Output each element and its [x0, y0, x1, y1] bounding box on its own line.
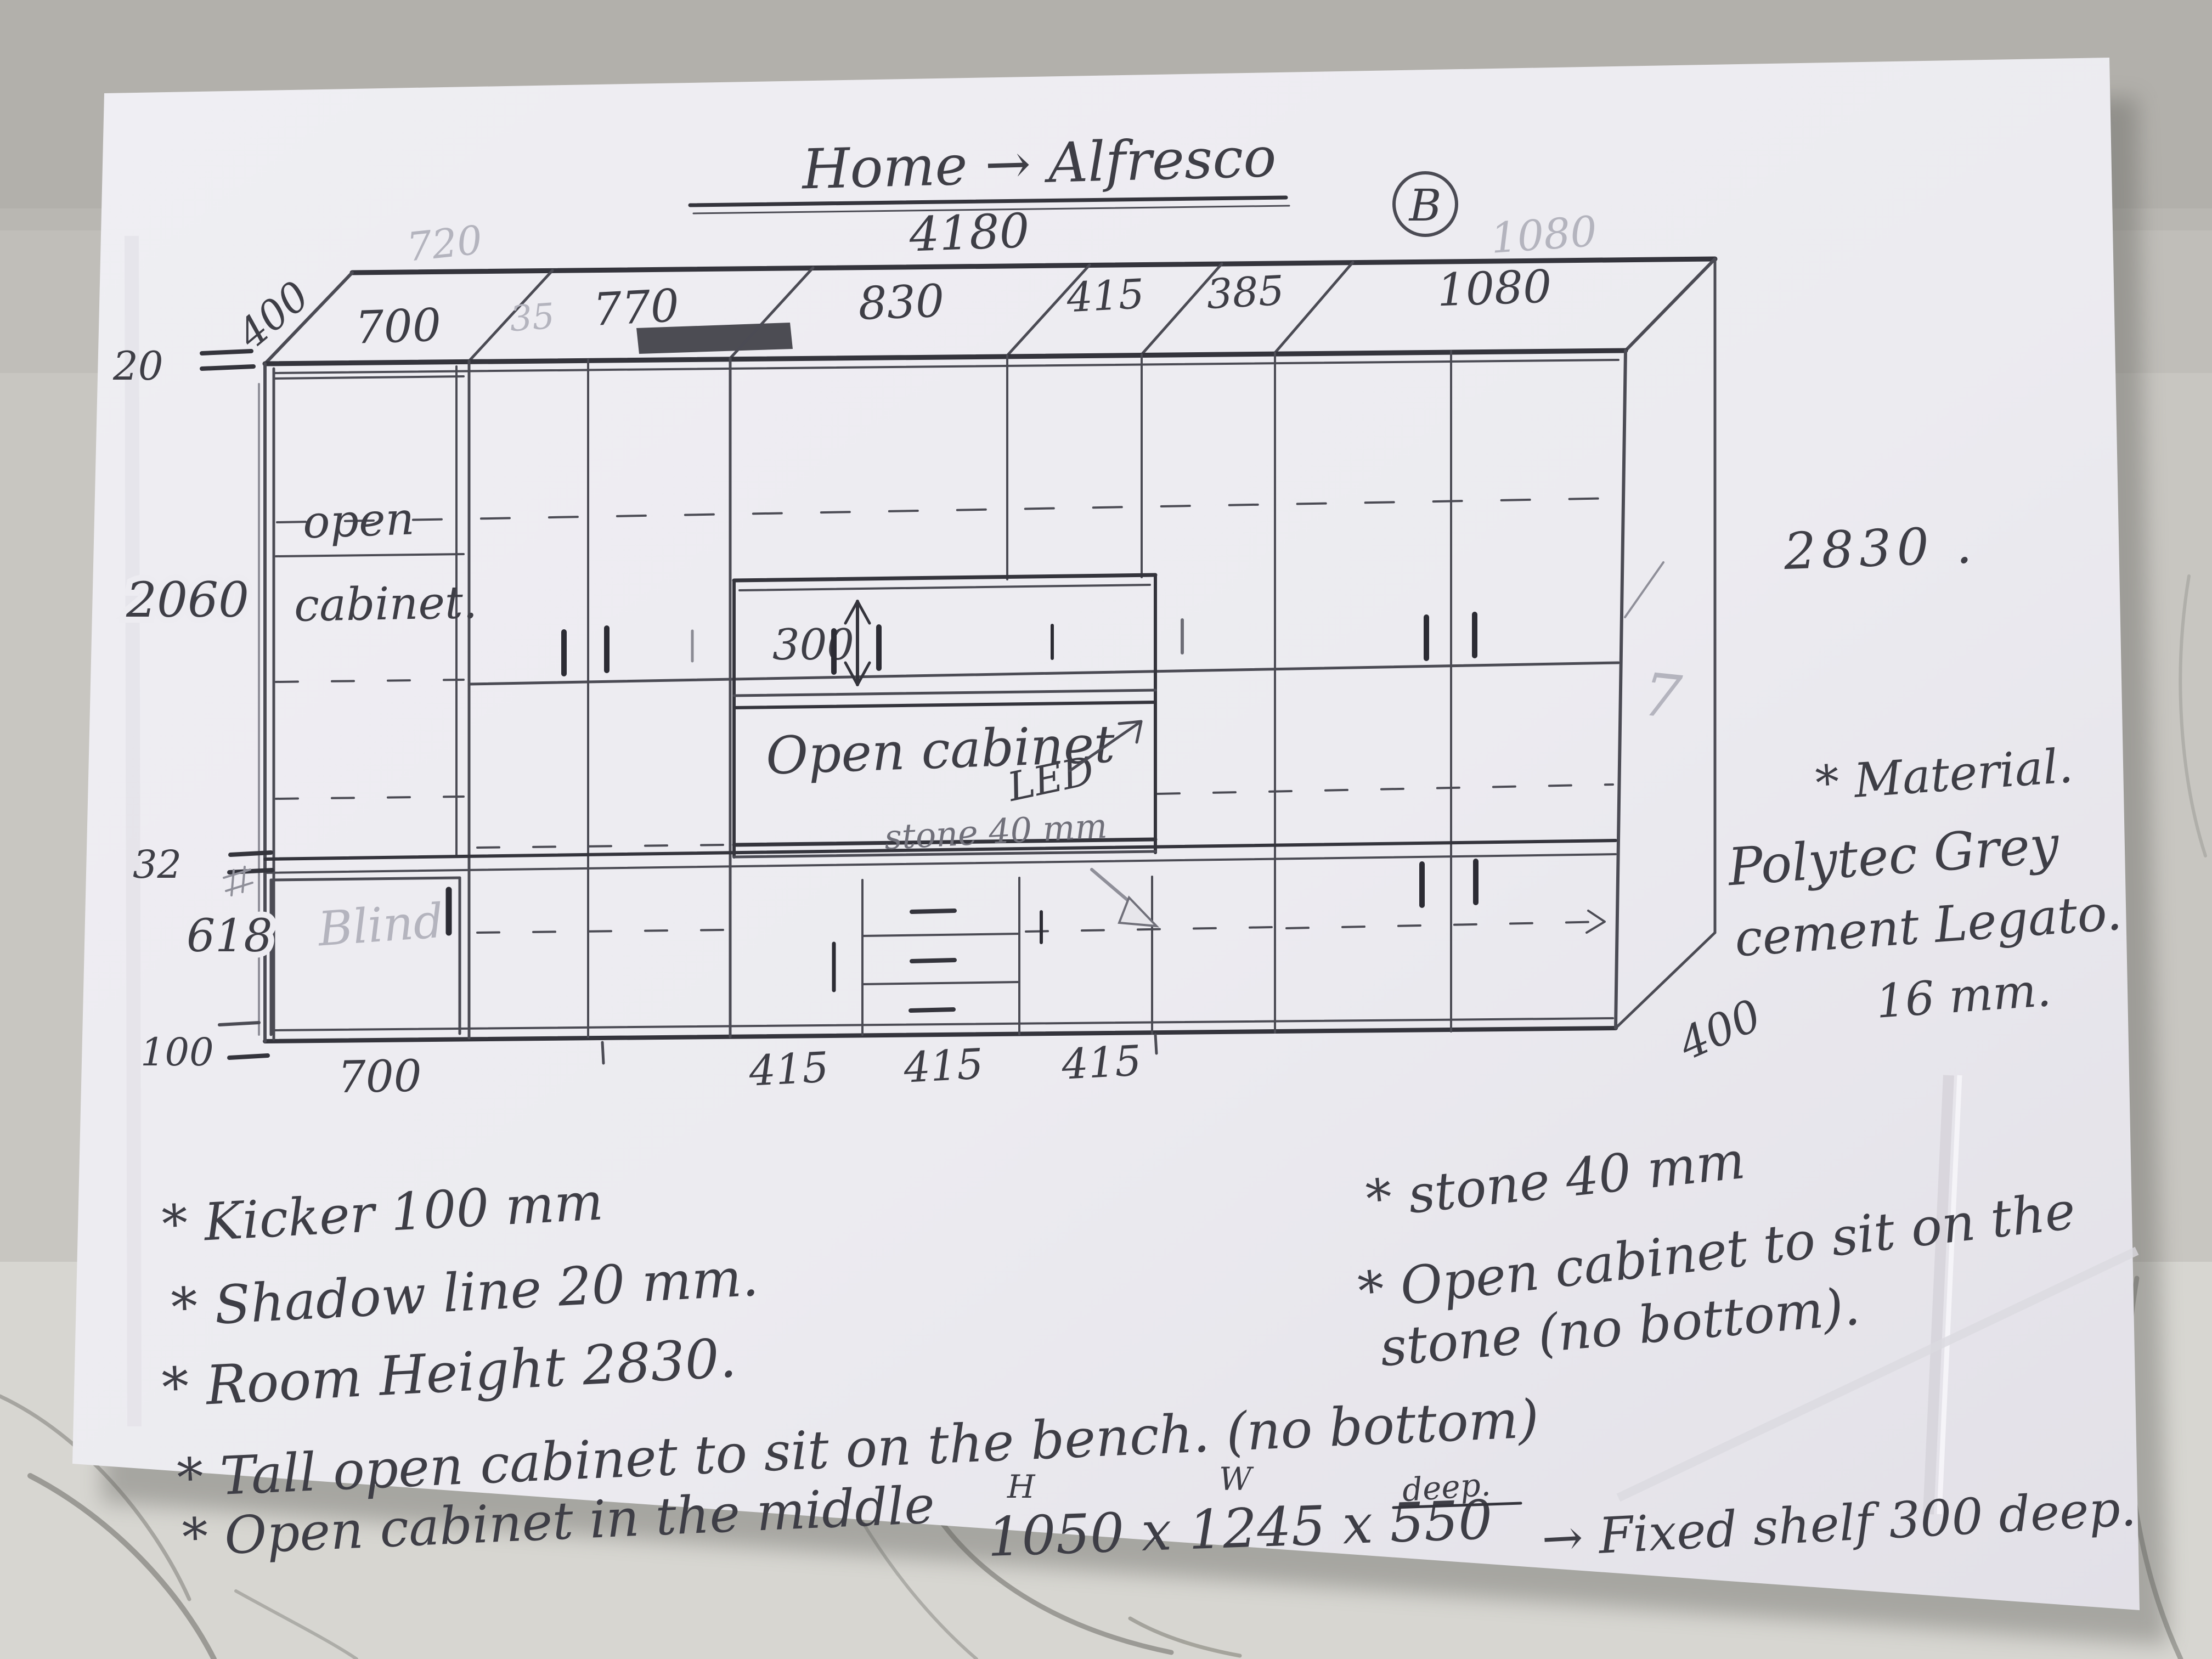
ghost-mark-7: 7 [1640, 661, 1685, 733]
sheet-title: Home → Alfresco [800, 125, 1277, 202]
revision-badge: B [1408, 180, 1442, 231]
dim-top-770: 770 [592, 280, 680, 336]
dim-base-618: 618 [187, 910, 273, 962]
dim-room-height: 2830 . [1782, 516, 1978, 581]
dim-top-385: 385 [1205, 267, 1285, 318]
dim-kicker-100: 100 [140, 1030, 214, 1075]
dim-bottom-415b: 415 [902, 1039, 985, 1092]
dim-bench-32: 32 [133, 842, 182, 887]
dim-top-700: 700 [354, 299, 442, 354]
shelf-300-dim: 300 [772, 620, 854, 670]
dim-top-1080: 1080 [1436, 261, 1553, 317]
dim-bottom-700: 700 [337, 1050, 422, 1103]
photo-of-cabinet-sketch: Home → Alfresco 4180 B 1080 400 720 700 … [0, 0, 2212, 1659]
dim-top-415: 415 [1065, 270, 1145, 321]
tall-cabinet-label-1: open [302, 493, 415, 549]
sup-deep: deep. [1401, 1465, 1492, 1509]
dim-bottom-415c: 415 [1060, 1036, 1143, 1089]
blind-cabinet-label: Blind [315, 894, 445, 957]
sketch-canvas: Home → Alfresco 4180 B 1080 400 720 700 … [0, 0, 2212, 1659]
dim-top-830: 830 [857, 275, 945, 330]
ghost-35: 35 [509, 296, 556, 340]
overall-width-dim: 4180 [908, 204, 1030, 263]
dim-bottom-415a: 415 [747, 1042, 830, 1096]
dim-tall-2060: 2060 [126, 572, 249, 628]
tall-cabinet-label-2: cabinet. [294, 577, 477, 632]
dim-shadowline-20: 20 [112, 343, 163, 389]
ghost-720: 720 [405, 217, 484, 270]
sup-height: H [1007, 1468, 1036, 1505]
ghost-width-note: 1080 [1489, 207, 1598, 263]
sup-width: W [1219, 1460, 1254, 1498]
